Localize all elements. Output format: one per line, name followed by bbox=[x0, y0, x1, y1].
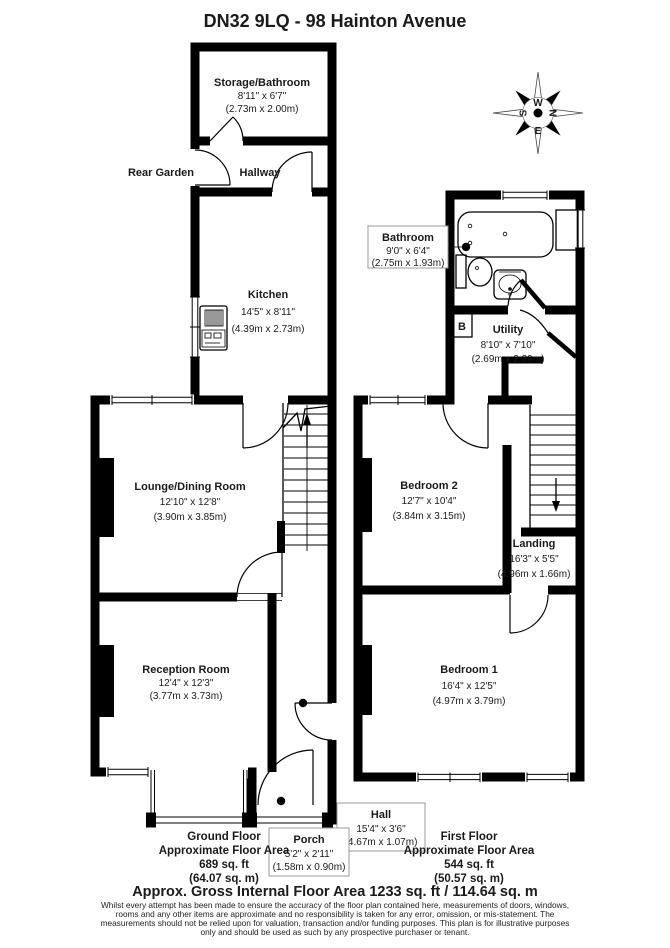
reception-metric: (3.77m x 3.73m) bbox=[150, 691, 223, 702]
bathroom-callout-dot bbox=[462, 243, 470, 251]
first-floor-area-title: First Floor bbox=[441, 831, 498, 843]
ground-floor-area-title: Ground Floor bbox=[187, 831, 261, 843]
disclaimer-line4: only and should be used as such by any p… bbox=[201, 927, 470, 937]
compass-south: S bbox=[519, 109, 530, 116]
compass-rose-icon: W E S N bbox=[493, 72, 583, 154]
first-floor-plan: B Bathroom 9'0" x 6'4" (2.75m x 1.93m) U… bbox=[358, 190, 586, 783]
total-area-text: Approx. Gross Internal Floor Area 1233 s… bbox=[132, 884, 538, 900]
porch-metric: (1.58m x 0.90m) bbox=[273, 862, 346, 873]
lounge-window bbox=[110, 395, 194, 406]
compass-north: N bbox=[547, 109, 558, 116]
storage-door bbox=[210, 117, 243, 141]
lounge-metric: (3.90m x 3.85m) bbox=[154, 512, 227, 523]
landing-imperial: 16'3" x 5'5" bbox=[509, 554, 559, 565]
porch-window bbox=[247, 813, 333, 828]
bathroom-label: Bathroom bbox=[382, 232, 434, 244]
reception-label: Reception Room bbox=[142, 664, 230, 676]
landing-metric: (4.96m x 1.66m) bbox=[498, 569, 571, 580]
utility-metric: (2.69m x 2.39m) bbox=[472, 354, 545, 365]
staircase-up bbox=[277, 403, 331, 553]
utility-imperial: 8'10" x 7'10" bbox=[481, 340, 536, 351]
compass-east: E bbox=[535, 126, 542, 137]
page-title: DN32 9LQ - 98 Hainton Avenue bbox=[204, 11, 467, 31]
ground-floor-area-subtitle: Approximate Floor Area bbox=[159, 845, 290, 857]
porch-door bbox=[258, 750, 313, 805]
kitchen-metric: (4.39m x 2.73m) bbox=[232, 324, 305, 335]
bathroom-window bbox=[501, 190, 549, 201]
lounge-imperial: 12'10" x 12'8" bbox=[160, 497, 221, 508]
bedroom2-metric: (3.84m x 3.15m) bbox=[393, 511, 466, 522]
rear-garden-label: Rear Garden bbox=[128, 167, 194, 179]
storage-bathroom-imperial: 8'11" x 6'7" bbox=[238, 91, 287, 102]
bathroom-label-box: Bathroom 9'0" x 6'4" (2.75m x 1.93m) bbox=[368, 226, 470, 269]
front-door-handle bbox=[299, 699, 307, 707]
bedroom2-window bbox=[368, 395, 427, 406]
reception-window bbox=[106, 766, 150, 778]
bedroom2-door bbox=[443, 403, 488, 448]
bedroom1-imperial: 16'4" x 12'5" bbox=[442, 681, 497, 692]
hallway-label: Hallway bbox=[240, 167, 282, 179]
stairs-down-arrow bbox=[552, 501, 560, 512]
compass-west: W bbox=[533, 98, 543, 109]
toilet-icon bbox=[456, 255, 492, 288]
kitchen-lounge-door bbox=[243, 403, 288, 448]
bedroom2-imperial: 12'7" x 10'4" bbox=[402, 496, 457, 507]
bedroom1-door bbox=[510, 595, 548, 633]
utility-label: Utility bbox=[493, 324, 524, 336]
bay-window bbox=[146, 770, 252, 828]
reception-imperial: 12'4" x 12'3" bbox=[159, 678, 214, 689]
boiler-box: B bbox=[452, 313, 472, 337]
kitchen-imperial: 14'5" x 8'11" bbox=[241, 307, 296, 318]
bathtub-icon bbox=[458, 212, 553, 257]
footer: Approx. Gross Internal Floor Area 1233 s… bbox=[101, 884, 570, 937]
hall-label: Hall bbox=[371, 809, 391, 821]
ground-floor-plan: Storage/Bathroom 8'11" x 6'7" (2.73m x 2… bbox=[95, 47, 339, 828]
bathroom-imperial: 9'0" x 6'4" bbox=[386, 246, 430, 257]
ground-floor-area-sqft: 689 sq. ft bbox=[199, 859, 249, 871]
storage-bathroom-metric: (2.73m x 2.00m) bbox=[226, 104, 299, 115]
porch-imperial: 5'2" x 2'11" bbox=[285, 849, 334, 860]
boiler-label: B bbox=[458, 321, 466, 333]
bathroom-metric: (2.75m x 1.93m) bbox=[372, 258, 445, 269]
first-floor-area-subtitle: Approximate Floor Area bbox=[404, 845, 535, 857]
kitchen-label: Kitchen bbox=[248, 289, 289, 301]
porch-door-handle bbox=[277, 797, 285, 805]
storage-bathroom-label: Storage/Bathroom bbox=[214, 77, 310, 89]
landing-label: Landing bbox=[513, 538, 556, 550]
hall-imperial: 15'4" x 3'6" bbox=[356, 824, 406, 835]
lounge-label: Lounge/Dining Room bbox=[134, 481, 245, 493]
bathroom-side-window bbox=[575, 210, 586, 248]
bedroom2-label: Bedroom 2 bbox=[400, 480, 457, 492]
floorplan-drawing: DN32 9LQ - 98 Hainton Avenue bbox=[0, 0, 670, 948]
hall-label-box: Hall 15'4" x 3'6" (4.67m x 1.07m) bbox=[337, 803, 425, 851]
staircase-down bbox=[530, 405, 578, 528]
lounge-reception-door bbox=[237, 552, 282, 601]
bedroom1-metric: (4.97m x 3.79m) bbox=[433, 696, 506, 707]
cooker-icon bbox=[200, 306, 227, 350]
porch-label: Porch bbox=[293, 834, 324, 846]
first-floor-area-sqft: 544 sq. ft bbox=[444, 859, 494, 871]
kitchen-window bbox=[190, 297, 201, 357]
bedroom1-label: Bedroom 1 bbox=[440, 664, 497, 676]
floorplan-page: DN32 9LQ - 98 Hainton Avenue bbox=[0, 0, 670, 948]
